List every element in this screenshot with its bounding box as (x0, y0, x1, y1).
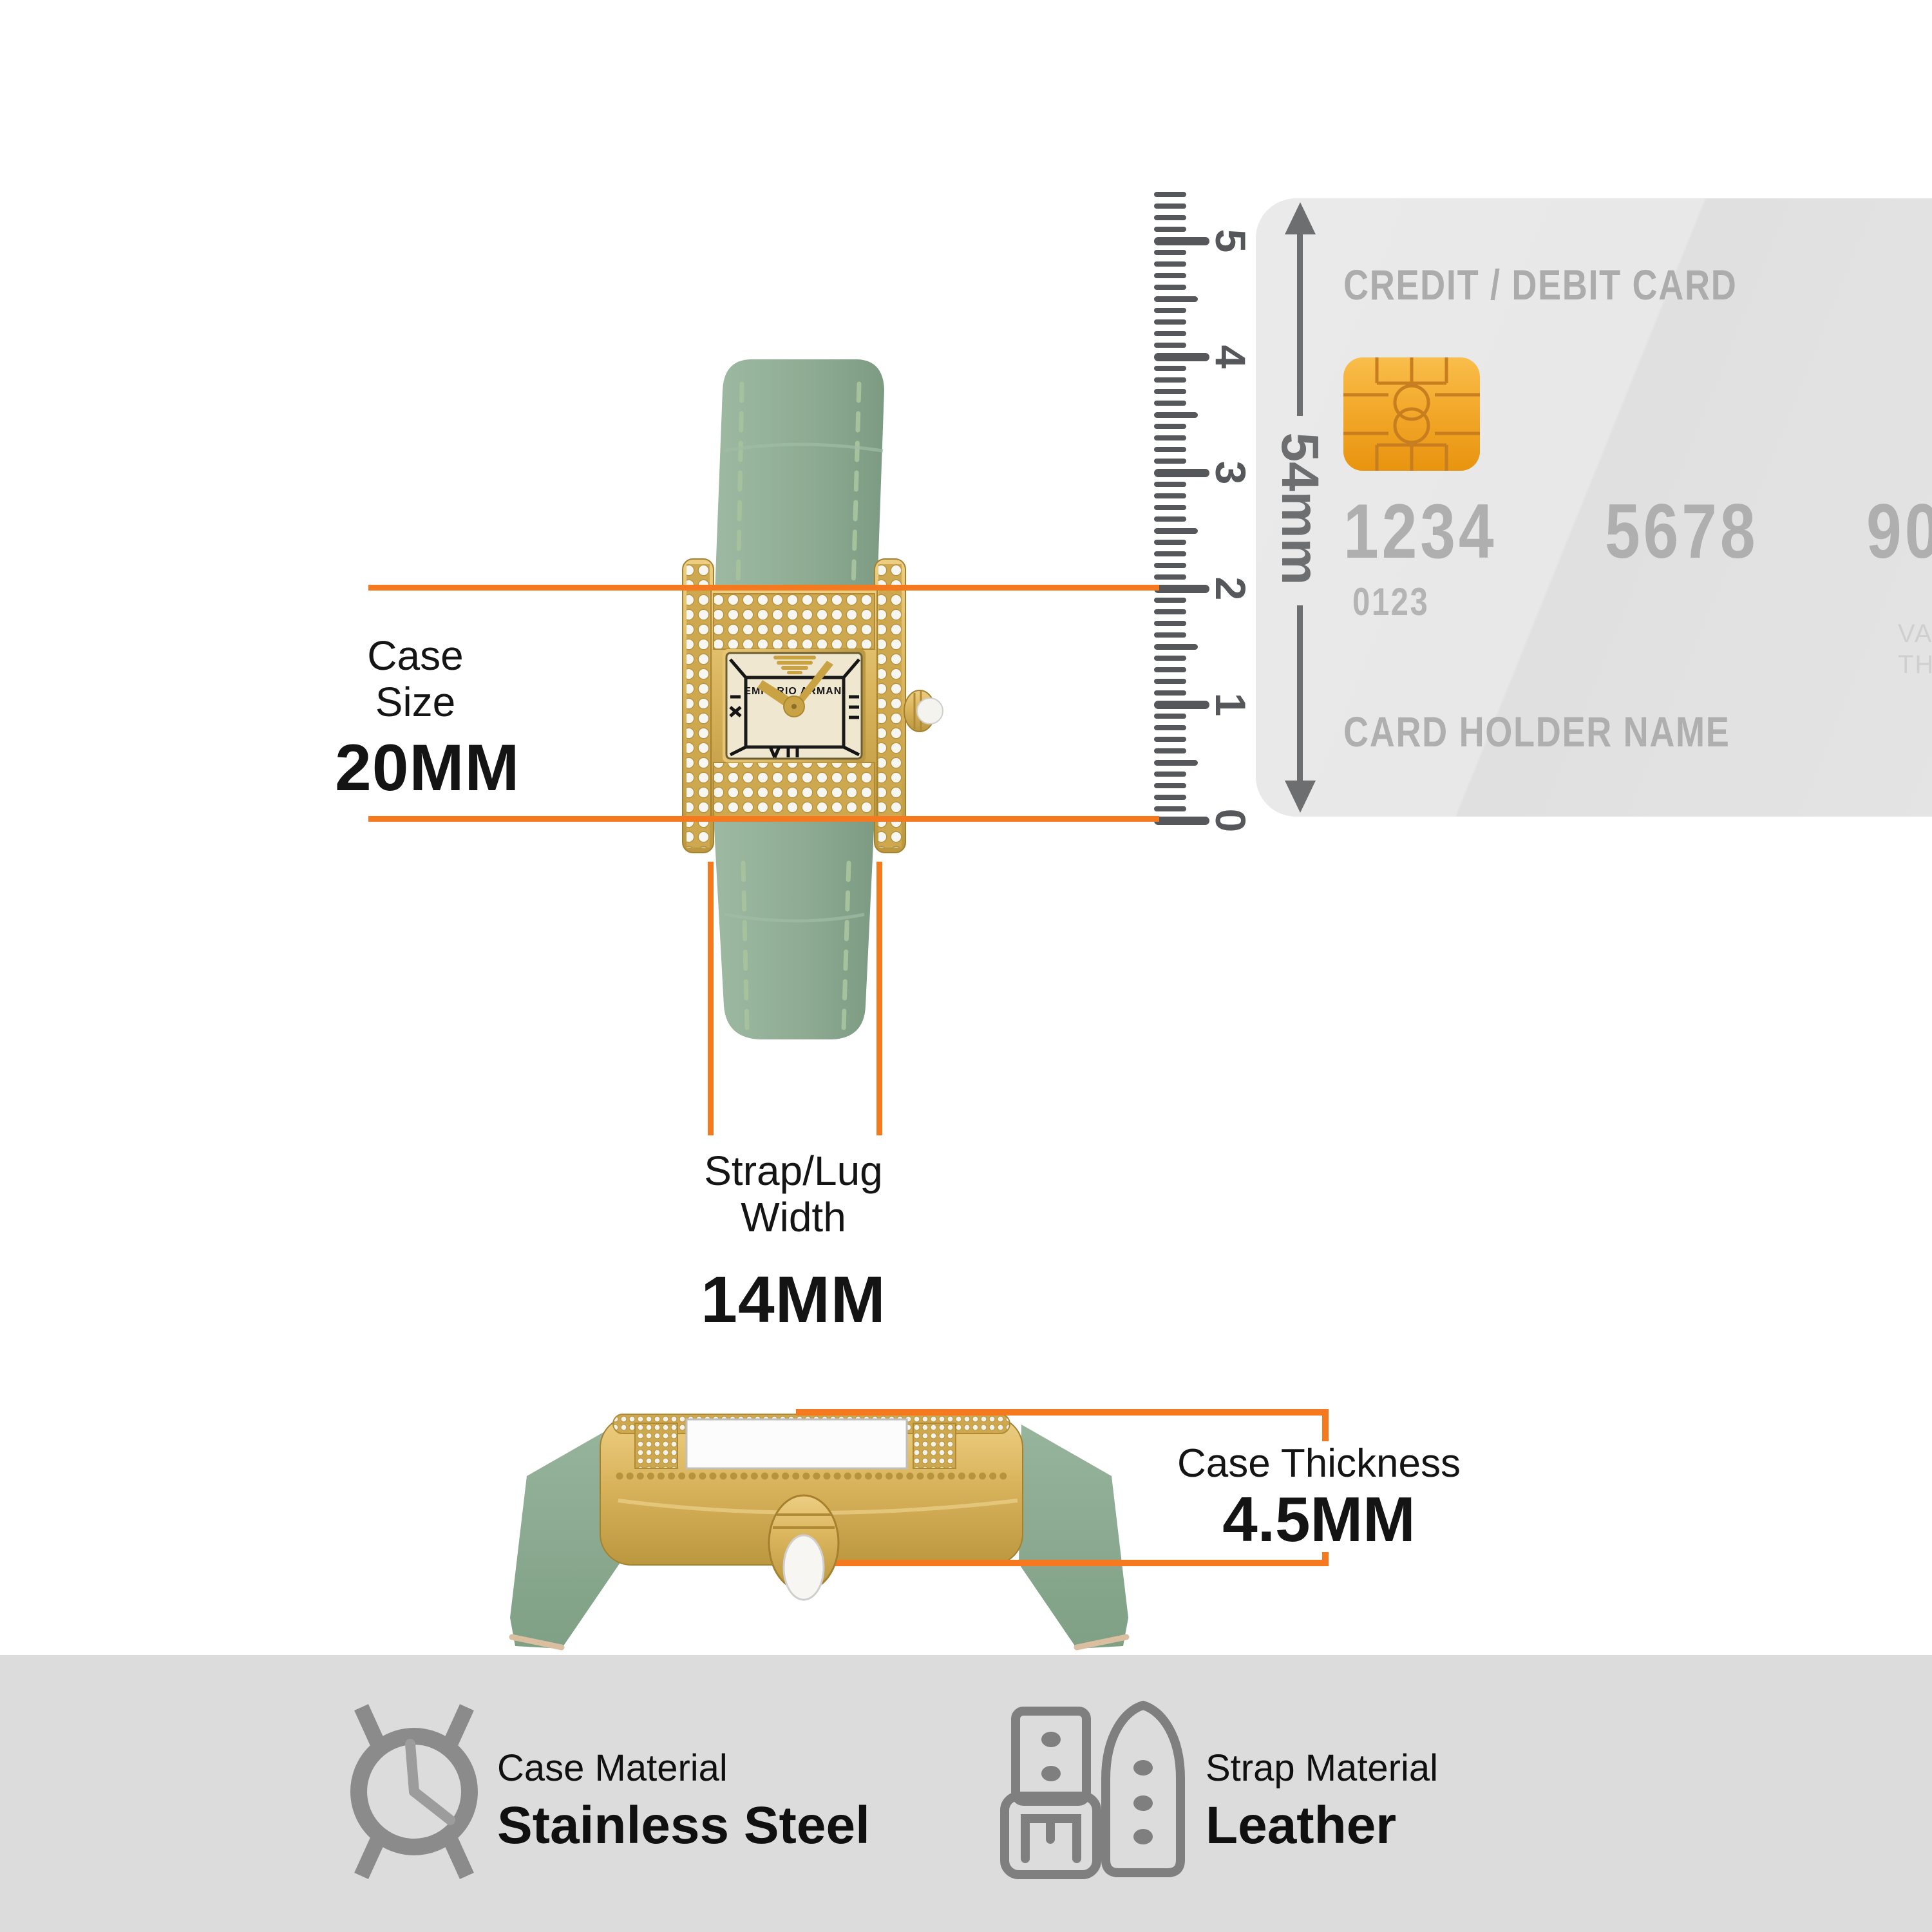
ruler-tick (1154, 795, 1186, 800)
ruler-tick (1154, 621, 1186, 626)
ruler-tick (1154, 516, 1186, 522)
ruler-tick (1154, 748, 1186, 753)
ruler-tick (1154, 250, 1186, 255)
ruler-tick (1154, 609, 1186, 614)
ruler-tick (1154, 343, 1186, 348)
watch-dial: EMPORIO ARMANI (723, 649, 866, 762)
ruler-tick (1154, 261, 1186, 267)
case-thickness-annotation: Case Thickness 4.5MM (1177, 1441, 1461, 1552)
ruler-tick (1154, 585, 1209, 593)
ruler-tick (1154, 447, 1186, 452)
ruler-tick (1154, 389, 1186, 394)
ruler-tick (1154, 632, 1186, 638)
ruler-tick (1154, 644, 1198, 650)
case-thickness-label: Case Thickness (1177, 1441, 1461, 1486)
ruler-tick (1154, 690, 1186, 696)
ruler-number: 5 (1208, 218, 1253, 263)
ruler-tick (1154, 435, 1186, 440)
ruler-tick (1154, 737, 1186, 742)
ruler-tick (1154, 574, 1186, 580)
ruler-tick (1154, 366, 1186, 371)
ruler-tick (1154, 598, 1186, 603)
ruler-tick (1154, 353, 1209, 361)
ruler-number: 4 (1208, 334, 1253, 379)
lug-width-line-right (876, 862, 882, 1135)
ruler-tick (1154, 667, 1186, 672)
ruler-tick (1154, 783, 1186, 788)
case-size-line-top (368, 585, 1159, 591)
ruler-tick (1154, 714, 1186, 719)
ruler-tick (1154, 493, 1186, 498)
ruler-number: 3 (1208, 450, 1253, 495)
ruler-tick (1154, 540, 1186, 545)
strap-material-icon (1005, 1705, 1180, 1875)
ruler-tick (1154, 377, 1186, 383)
case-size-line-bottom (368, 816, 1159, 822)
ruler-tick (1154, 563, 1186, 568)
ruler-tick (1154, 237, 1209, 245)
watch-spec-infographic: { "colors": { "accent_orange": "#F5791F"… (0, 0, 1932, 1932)
ruler-tick (1154, 401, 1186, 406)
ruler-number: 0 (1208, 798, 1253, 843)
ruler-tick (1154, 285, 1186, 290)
ruler-tick (1154, 725, 1186, 730)
ruler-tick (1154, 227, 1186, 232)
ruler-tick (1154, 679, 1186, 684)
ruler-tick (1154, 772, 1186, 777)
case-material-icon (359, 1714, 469, 1869)
side-crown (769, 1495, 838, 1600)
ruler-tick (1154, 319, 1186, 325)
ruler-tick (1154, 701, 1209, 709)
ruler-tick (1154, 192, 1186, 197)
case-thickness-value: 4.5MM (1177, 1486, 1461, 1552)
ruler-tick (1154, 528, 1198, 534)
side-strap-right (1019, 1425, 1128, 1649)
lug-width-line-left (708, 862, 714, 1135)
ruler-number: 1 (1208, 682, 1253, 727)
ruler-tick (1154, 273, 1186, 278)
ruler-tick (1154, 551, 1186, 556)
ruler-tick (1154, 459, 1186, 464)
ruler-tick (1154, 469, 1209, 477)
ruler-number: 2 (1208, 566, 1253, 611)
ruler-tick (1154, 215, 1186, 220)
ruler-tick (1154, 308, 1186, 313)
ruler-tick (1154, 806, 1186, 811)
ruler-tick (1154, 424, 1186, 429)
illustration-layer: EMPORIO ARMANI (0, 0, 1932, 1932)
ruler-tick (1154, 331, 1186, 336)
ruler-tick (1154, 505, 1186, 510)
ruler-tick (1154, 412, 1198, 418)
ruler-tick (1154, 760, 1198, 766)
watch-crown (904, 690, 943, 732)
ruler-tick (1154, 817, 1209, 825)
watch-strap-bottom (714, 817, 875, 1039)
ruler-tick (1154, 656, 1186, 661)
ruler-tick (1154, 204, 1186, 209)
ruler-tick (1154, 482, 1186, 487)
ruler-tick (1154, 296, 1198, 302)
watch-front-view: EMPORIO ARMANI (683, 359, 943, 1039)
